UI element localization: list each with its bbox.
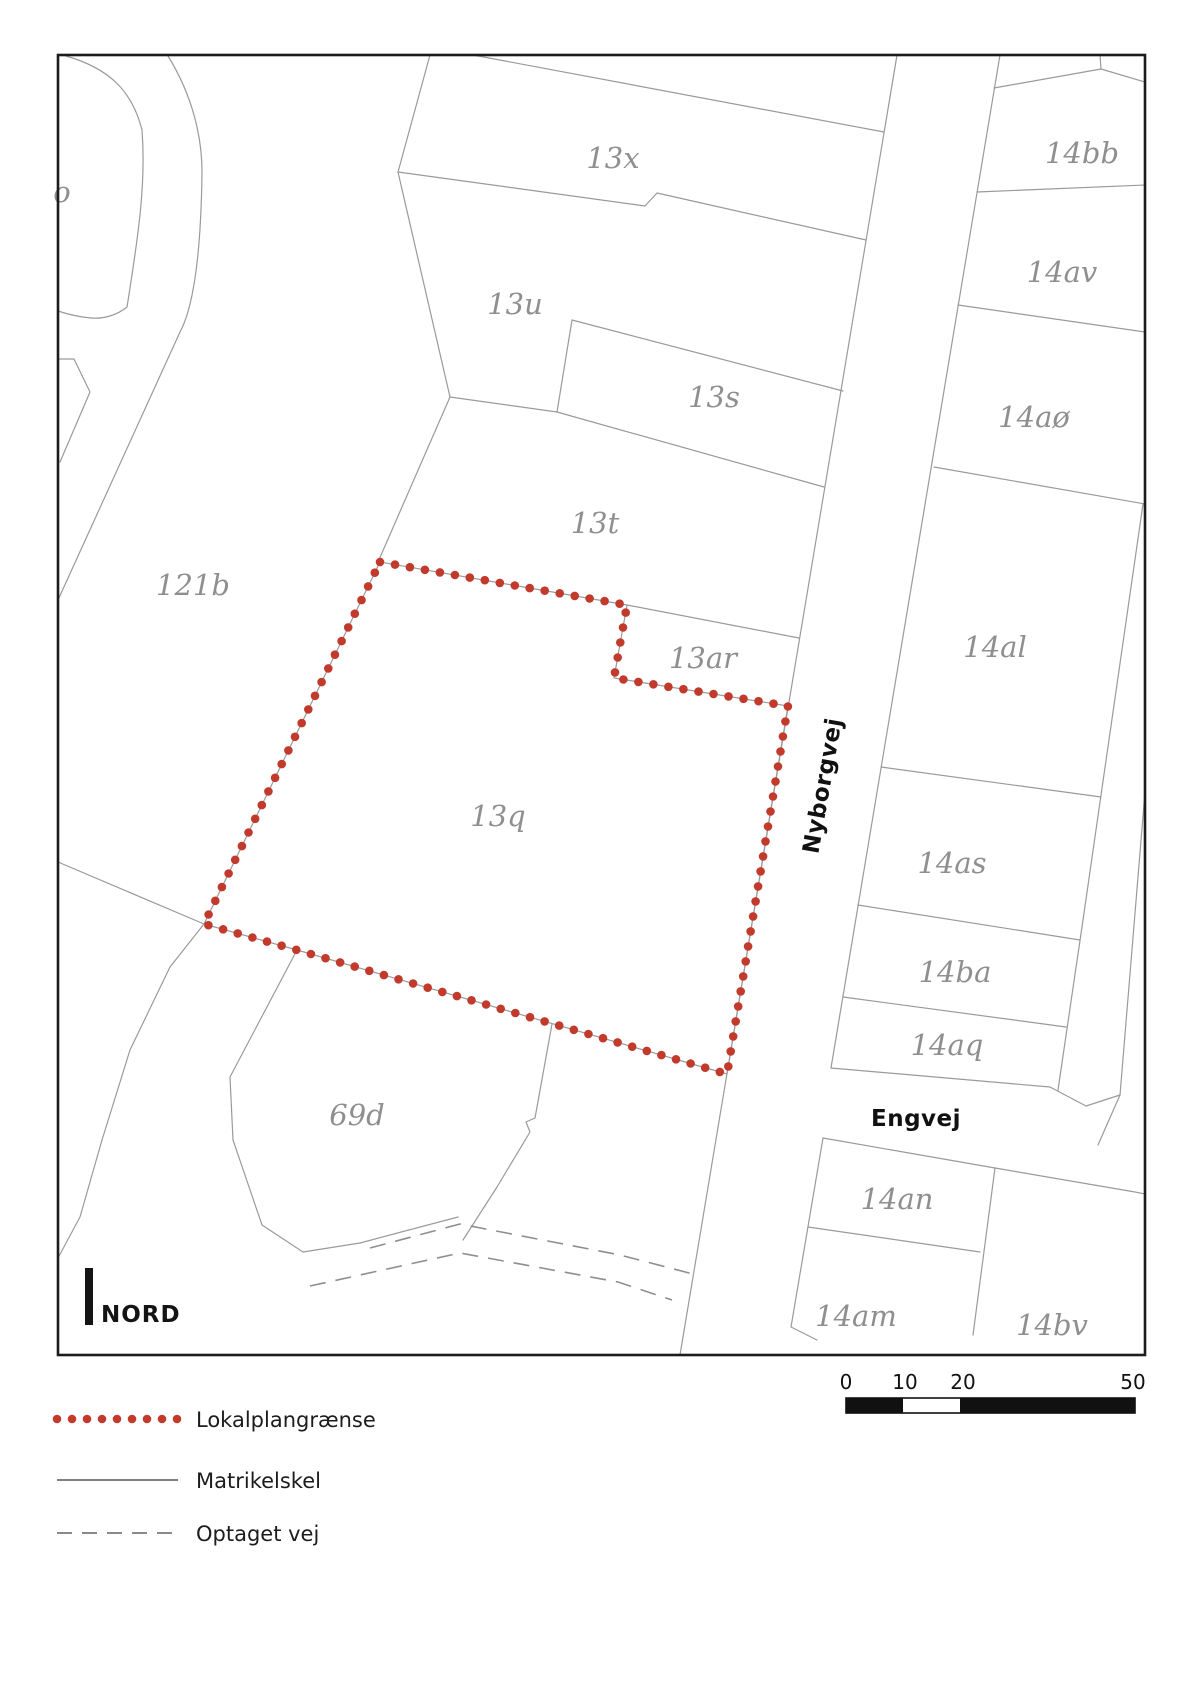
lokalplan-boundary-dot bbox=[570, 1026, 579, 1035]
lokalplan-boundary-dot bbox=[331, 650, 340, 659]
parcel-label-14an: 14an bbox=[861, 1182, 934, 1216]
lokalplan-boundary-dot bbox=[729, 1032, 738, 1041]
parcel-label-121b: 121b bbox=[156, 568, 230, 602]
parcel-label-13ar: 13ar bbox=[669, 641, 739, 675]
lokalplan-boundary-dot bbox=[672, 1055, 681, 1064]
lokalplan-boundary-dot bbox=[686, 1059, 695, 1068]
lokalplan-boundary-dot bbox=[540, 1017, 549, 1026]
lokalplan-boundary-dot bbox=[679, 685, 688, 694]
legend-dot-swatch bbox=[53, 1415, 182, 1424]
lokalplan-boundary-dot bbox=[643, 1047, 652, 1056]
lokalplan-boundary-dot bbox=[271, 774, 280, 783]
scale-bar: 0 10 20 50 bbox=[840, 1370, 1146, 1413]
lokalplan-boundary-dot bbox=[218, 883, 227, 892]
lokalplan-boundary-dot bbox=[344, 623, 353, 632]
north-indicator: NORD bbox=[85, 1268, 181, 1328]
lokalplan-boundary-dot bbox=[769, 792, 778, 801]
parcel-label-13s: 13s bbox=[688, 380, 740, 414]
lokalplan-boundary-dot bbox=[739, 695, 748, 704]
lokalplan-boundary-dot bbox=[423, 983, 432, 992]
lokalplan-boundary-dot bbox=[291, 733, 300, 742]
lokalplan-boundary-dot bbox=[467, 996, 476, 1005]
legend-label-optaget-vej: Optaget vej bbox=[196, 1522, 319, 1546]
lokalplan-boundary-dot bbox=[613, 1038, 622, 1047]
parcel-label-14ao: 14aø bbox=[998, 400, 1070, 434]
lokalplan-boundary-dot bbox=[734, 1002, 743, 1011]
parcel-label-14al: 14al bbox=[963, 630, 1026, 664]
scale-bar-segment-dark-2 bbox=[960, 1398, 1135, 1413]
parcel-label-13u: 13u bbox=[487, 287, 543, 321]
lokalplan-boundary-dot bbox=[317, 678, 326, 687]
legend-dot bbox=[68, 1415, 77, 1424]
lokalplan-boundary-dot bbox=[759, 852, 768, 861]
scale-bar-segment-dark-1 bbox=[846, 1398, 903, 1413]
lokalplan-boundary-dot bbox=[709, 690, 718, 699]
lokalplan-boundary-dot bbox=[365, 967, 374, 976]
scale-tick-0: 0 bbox=[840, 1370, 853, 1394]
lokalplan-boundary-dot bbox=[409, 979, 418, 988]
lokalplan-boundary-dot bbox=[555, 589, 564, 598]
lokalplan-boundary-dot bbox=[741, 957, 750, 966]
lokalplan-boundary-dot bbox=[769, 699, 778, 708]
lokalplan-boundary-dot bbox=[621, 608, 630, 617]
lokalplan-boundary-dot bbox=[584, 1030, 593, 1039]
lokalplan-boundary-dot bbox=[611, 668, 620, 677]
parcel-label-14ba: 14ba bbox=[919, 955, 992, 989]
lokalplan-boundary-dot bbox=[466, 573, 475, 582]
lokalplan-boundary-dot bbox=[746, 927, 755, 936]
lokalplan-boundary-dot bbox=[421, 566, 430, 575]
north-arrow-icon bbox=[85, 1268, 93, 1325]
lokalplan-boundary-dot bbox=[724, 1062, 733, 1071]
lokalplan-boundary-dot bbox=[204, 910, 213, 919]
lokalplan-boundary-dot bbox=[380, 971, 389, 980]
parcel-labels: o121b13x13u13s13t13ar13q69d14bb14av14aø1… bbox=[53, 136, 1119, 1342]
scale-tick-10: 10 bbox=[892, 1370, 917, 1394]
lokalplan-boundary-dot bbox=[406, 563, 415, 572]
lokalplan-boundary-dot bbox=[525, 584, 534, 593]
lokalplan-boundary-dot bbox=[211, 897, 220, 906]
lokalplan-boundary-dot bbox=[231, 856, 240, 865]
lokalplan-boundary-dot bbox=[599, 1034, 608, 1043]
lokalplan-boundary-dot bbox=[724, 692, 733, 701]
legend-label-matrikelskel: Matrikelskel bbox=[196, 1469, 321, 1493]
lokalplan-boundary-dot bbox=[739, 972, 748, 981]
lokalplan-boundary-dot bbox=[716, 1068, 725, 1077]
lokalplan-boundary-dot bbox=[336, 958, 345, 967]
legend-dot bbox=[53, 1415, 62, 1424]
lokalplan-boundary-dot bbox=[511, 1009, 520, 1018]
lokalplan-boundary-dot bbox=[784, 702, 793, 711]
parcel-label-14av: 14av bbox=[1027, 255, 1098, 289]
lokalplan-boundary-dot bbox=[779, 732, 788, 741]
lokalplan-boundary-dot bbox=[585, 594, 594, 603]
lokalplan-boundary-dot bbox=[251, 815, 260, 824]
lokalplan-boundary-dot bbox=[233, 929, 242, 938]
lokalplan-boundary-dot bbox=[224, 869, 233, 878]
lokalplan-boundary-dot bbox=[292, 946, 301, 955]
lokalplan-boundary-dot bbox=[726, 1047, 735, 1056]
lokalplan-boundary-dot bbox=[649, 680, 658, 689]
legend-dot bbox=[113, 1415, 122, 1424]
lokalplan-boundary-dot bbox=[600, 597, 609, 606]
parcel-label-14as: 14as bbox=[917, 846, 986, 880]
lokalplan-boundary-dot bbox=[238, 842, 247, 851]
lokalplan-boundary-dot bbox=[540, 586, 549, 595]
lokalplan-boundary-dot bbox=[634, 678, 643, 687]
scale-tick-20: 20 bbox=[950, 1370, 975, 1394]
lokalplan-boundary-dot bbox=[731, 1017, 740, 1026]
lokalplan-boundary-dot bbox=[526, 1013, 535, 1022]
lokalplan-boundary-dot bbox=[694, 687, 703, 696]
lokalplan-boundary-dot bbox=[391, 560, 400, 569]
north-label: NORD bbox=[101, 1302, 181, 1328]
lokalplan-boundary-dot bbox=[764, 822, 773, 831]
lokalplan-boundary-dot bbox=[761, 837, 770, 846]
lokalplan-boundary-dot bbox=[371, 568, 380, 577]
lokalplan-boundary-dot bbox=[754, 882, 763, 891]
parcel-label-69d: 69d bbox=[329, 1098, 384, 1132]
lokalplan-boundary-dot bbox=[376, 558, 385, 567]
lokalplan-boundary-dot bbox=[628, 1042, 637, 1051]
parcel-label-13x: 13x bbox=[586, 141, 639, 175]
legend: Lokalplangrænse Matrikelskel Optaget vej bbox=[53, 1408, 376, 1546]
lokalplan-boundary-dot bbox=[555, 1021, 564, 1030]
lokalplan-boundary-dot bbox=[774, 762, 783, 771]
legend-dot bbox=[158, 1415, 167, 1424]
lokalplan-boundary-dot bbox=[615, 599, 624, 608]
cadastral-map-page: o121b13x13u13s13t13ar13q69d14bb14av14aø1… bbox=[0, 0, 1200, 1697]
lokalplan-boundary-dot bbox=[570, 592, 579, 601]
lokalplan-boundary-dot bbox=[749, 912, 758, 921]
parcel-label-o: o bbox=[53, 175, 70, 209]
legend-dot bbox=[98, 1415, 107, 1424]
legend-dot bbox=[83, 1415, 92, 1424]
lokalplan-boundary-dot bbox=[311, 692, 320, 701]
lokalplan-boundary-dot bbox=[324, 664, 333, 673]
parcel-label-13t: 13t bbox=[571, 506, 620, 540]
parcel-label-14aq: 14aq bbox=[911, 1028, 984, 1062]
lokalplan-boundary-dot bbox=[264, 787, 273, 796]
lokalplan-boundary-dot bbox=[304, 705, 313, 714]
lokalplan-boundary-dot bbox=[771, 777, 780, 786]
street-label-nyborgvej: Nyborgvej bbox=[798, 716, 847, 856]
parcel-label-13q: 13q bbox=[470, 799, 525, 833]
lokalplan-boundary-dot bbox=[451, 571, 460, 580]
lokalplan-boundary-dot bbox=[284, 746, 293, 755]
optaget-vej-lines bbox=[310, 1224, 693, 1300]
lokalplan-boundary-dot bbox=[657, 1051, 666, 1060]
lokalplan-boundary-dot bbox=[664, 683, 673, 692]
lokalplan-boundary-dot bbox=[736, 987, 745, 996]
lokalplan-boundary-dot bbox=[496, 579, 505, 588]
lokalplan-boundary-dot bbox=[766, 807, 775, 816]
lokalplan-boundary-dot bbox=[481, 576, 490, 585]
lokalplan-boundary-dot bbox=[756, 867, 765, 876]
lokalplan-boundary-dot bbox=[357, 596, 366, 605]
lokalplan-boundary-dot bbox=[321, 954, 330, 963]
lokalplan-boundary-dot bbox=[297, 719, 306, 728]
lokalplan-boundary-dot bbox=[263, 937, 272, 946]
lokalplan-boundary-dot bbox=[613, 653, 622, 662]
lokalplan-boundary-dot bbox=[616, 638, 625, 647]
legend-dot bbox=[173, 1415, 182, 1424]
lokalplan-boundary-dot bbox=[307, 950, 316, 959]
lokalplan-boundary-dot bbox=[394, 975, 403, 984]
parcel-label-14am: 14am bbox=[815, 1299, 897, 1333]
lokalplan-boundary-dot bbox=[350, 962, 359, 971]
lokalplan-boundary-dot bbox=[619, 623, 628, 632]
lokalplan-boundary-dot bbox=[351, 609, 360, 618]
lokalplan-boundary-dot bbox=[751, 897, 760, 906]
lokalplan-boundary-dot bbox=[619, 675, 628, 684]
lokalplan-boundary-dot bbox=[776, 747, 785, 756]
matrikel-lines bbox=[58, 55, 1145, 1355]
lokalplan-boundary-dot bbox=[453, 992, 462, 1001]
map-canvas: o121b13x13u13s13t13ar13q69d14bb14av14aø1… bbox=[0, 0, 1200, 1697]
parcel-label-14bv: 14bv bbox=[1016, 1308, 1088, 1342]
lokalplan-boundary-dot bbox=[337, 637, 346, 646]
lokalplan-boundary-dot bbox=[204, 921, 213, 930]
parcel-label-14bb: 14bb bbox=[1045, 136, 1119, 170]
lokalplan-boundary-dot bbox=[436, 568, 445, 577]
lokalplan-boundary-dot bbox=[364, 582, 373, 591]
scale-tick-50: 50 bbox=[1120, 1370, 1145, 1394]
street-label-engvej: Engvej bbox=[871, 1106, 961, 1132]
lokalplan-boundary-dot bbox=[438, 988, 447, 997]
legend-label-lokalplangraense: Lokalplangrænse bbox=[196, 1408, 376, 1432]
lokalplan-boundary-dot bbox=[277, 941, 286, 950]
lokalplan-boundary-dot bbox=[248, 933, 257, 942]
lokalplan-boundary-dot bbox=[219, 925, 228, 934]
lokalplan-boundary-dot bbox=[482, 1000, 491, 1009]
lokalplan-boundary-dot bbox=[744, 942, 753, 951]
legend-dot bbox=[143, 1415, 152, 1424]
lokalplan-boundary-dot bbox=[511, 581, 520, 590]
lokalplan-boundary-dot bbox=[258, 801, 267, 810]
lokalplan-boundary-dot bbox=[701, 1063, 710, 1072]
map-border bbox=[58, 55, 1145, 1355]
lokalplan-boundary-dot bbox=[244, 828, 253, 837]
legend-dot bbox=[128, 1415, 137, 1424]
lokalplan-boundary-dot bbox=[754, 697, 763, 706]
lokalplan-boundary-dot bbox=[496, 1005, 505, 1014]
lokalplan-boundary-dot bbox=[277, 760, 286, 769]
lokalplan-boundary-dot bbox=[781, 717, 790, 726]
